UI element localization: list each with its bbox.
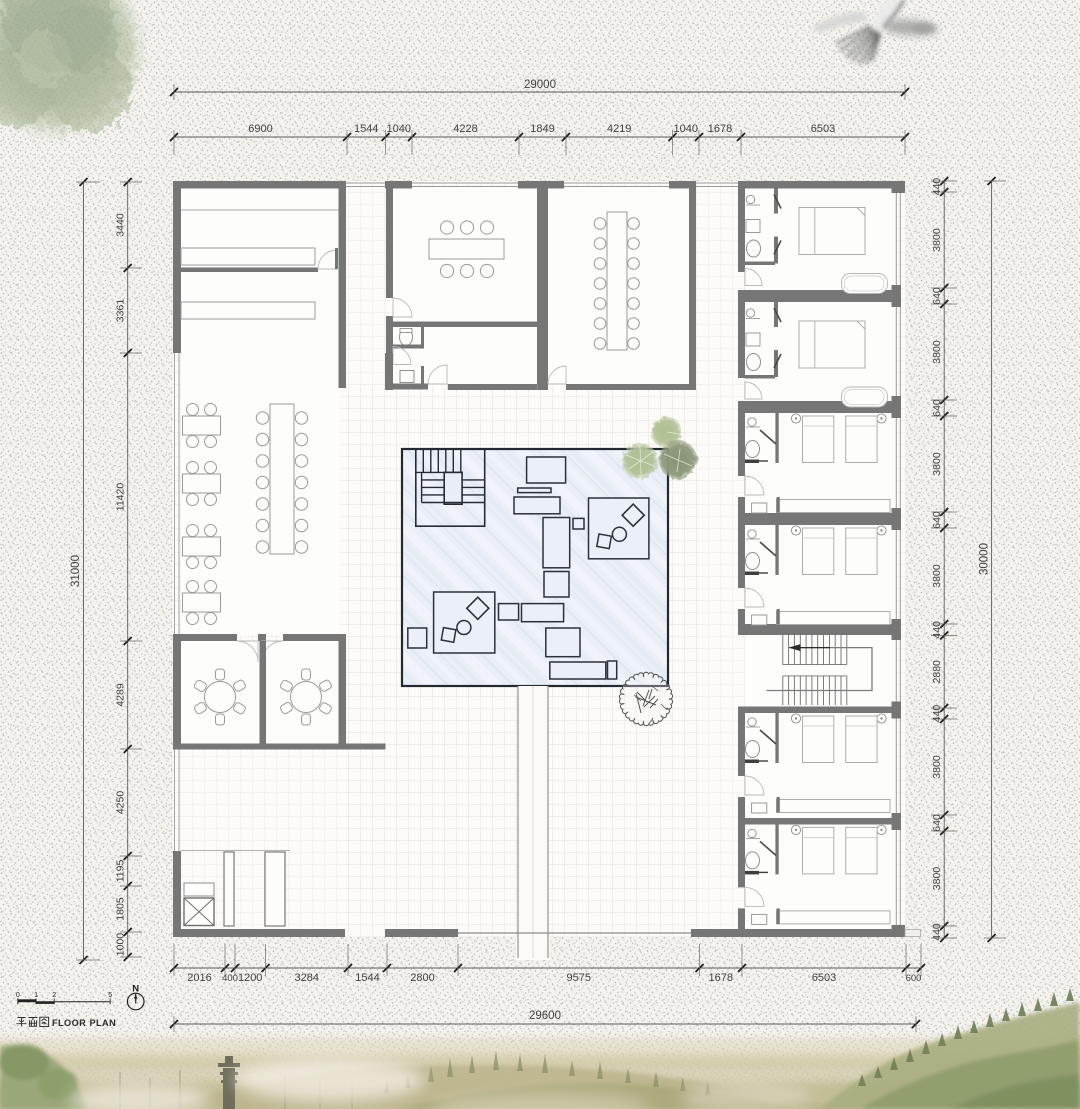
svg-text:0: 0 — [16, 992, 20, 999]
svg-text:30000: 30000 — [979, 543, 991, 575]
svg-text:6503: 6503 — [811, 123, 835, 135]
svg-text:400: 400 — [222, 973, 238, 984]
svg-text:1040: 1040 — [387, 123, 411, 135]
svg-text:640: 640 — [931, 287, 943, 305]
svg-text:29000: 29000 — [524, 79, 556, 91]
svg-text:4250: 4250 — [115, 791, 127, 815]
svg-text:11420: 11420 — [115, 483, 127, 512]
svg-text:4228: 4228 — [453, 123, 477, 135]
svg-text:5: 5 — [108, 992, 112, 999]
svg-text:1: 1 — [34, 992, 38, 999]
svg-text:31000: 31000 — [70, 555, 82, 587]
svg-text:1200: 1200 — [238, 972, 262, 984]
svg-text:3800: 3800 — [931, 867, 943, 891]
svg-text:2: 2 — [52, 992, 56, 999]
svg-text:640: 640 — [931, 399, 943, 417]
svg-text:3800: 3800 — [931, 228, 943, 252]
svg-text:440: 440 — [931, 178, 943, 196]
svg-text:640: 640 — [931, 814, 943, 832]
svg-text:PLAN: PLAN — [90, 1018, 117, 1028]
svg-text:6900: 6900 — [248, 123, 272, 135]
svg-text:640: 640 — [931, 511, 943, 529]
svg-text:1805: 1805 — [115, 897, 127, 921]
svg-text:3800: 3800 — [931, 755, 943, 779]
svg-text:3361: 3361 — [115, 299, 127, 323]
svg-text:1195: 1195 — [115, 860, 127, 883]
svg-text:440: 440 — [931, 705, 943, 723]
svg-text:3284: 3284 — [295, 972, 319, 984]
svg-text:2016: 2016 — [187, 972, 211, 984]
svg-text:1544: 1544 — [355, 972, 379, 984]
svg-text:440: 440 — [931, 621, 943, 639]
svg-text:2880: 2880 — [931, 660, 943, 684]
svg-text:3440: 3440 — [115, 213, 127, 237]
svg-text:1544: 1544 — [354, 123, 378, 135]
svg-text:440: 440 — [931, 923, 943, 941]
svg-text:1678: 1678 — [709, 972, 733, 984]
svg-text:9575: 9575 — [567, 972, 591, 984]
svg-text:1849: 1849 — [530, 123, 554, 135]
svg-text:3800: 3800 — [931, 564, 943, 588]
svg-text:4219: 4219 — [607, 123, 631, 135]
svg-text:FLOOR: FLOOR — [52, 1018, 86, 1028]
svg-text:4289: 4289 — [115, 683, 127, 707]
svg-text:1678: 1678 — [708, 123, 732, 135]
svg-text:600: 600 — [906, 973, 922, 984]
svg-text:3800: 3800 — [931, 340, 943, 364]
svg-text:1040: 1040 — [674, 123, 698, 135]
svg-text:1000: 1000 — [115, 933, 127, 957]
svg-text:6503: 6503 — [812, 972, 836, 984]
svg-text:29600: 29600 — [529, 1010, 561, 1022]
svg-text:2800: 2800 — [410, 972, 434, 984]
svg-text:3800: 3800 — [931, 452, 943, 476]
